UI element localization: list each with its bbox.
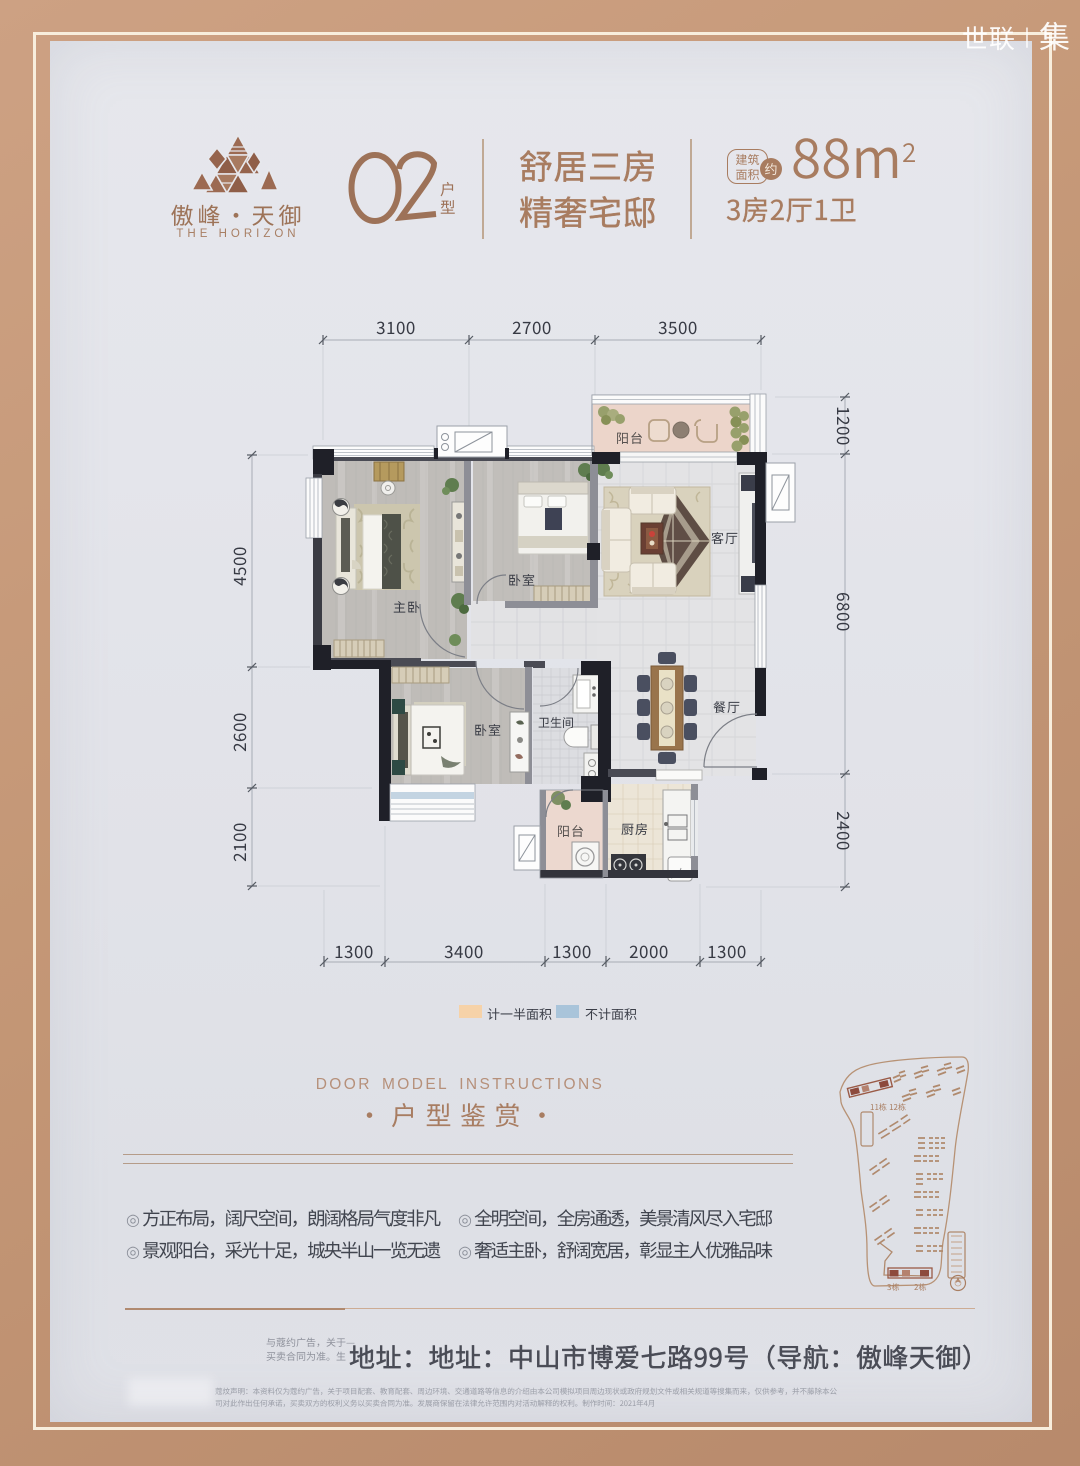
svg-text:2600: 2600 <box>226 712 251 752</box>
svg-text:2栋: 2栋 <box>914 1282 926 1293</box>
svg-text:阳台: 阳台 <box>616 428 644 447</box>
svg-text:阳台: 阳台 <box>557 821 585 840</box>
svg-text:2700: 2700 <box>512 320 552 339</box>
svg-text:3栋: 3栋 <box>887 1282 899 1293</box>
svg-text:客厅: 客厅 <box>711 528 739 547</box>
svg-text:卧室: 卧室 <box>474 720 502 739</box>
svg-text:4500: 4500 <box>226 546 251 586</box>
svg-text:3100: 3100 <box>376 320 416 339</box>
svg-text:2000: 2000 <box>629 938 669 963</box>
svg-text:3500: 3500 <box>658 320 698 339</box>
svg-text:卫生间: 卫生间 <box>538 714 574 731</box>
svg-text:1300: 1300 <box>334 938 374 963</box>
svg-text:1200: 1200 <box>832 406 857 446</box>
svg-text:厨房: 厨房 <box>621 819 649 838</box>
svg-text:1300: 1300 <box>552 938 592 963</box>
svg-text:1300: 1300 <box>707 938 747 963</box>
svg-text:6800: 6800 <box>832 592 857 632</box>
svg-text:卧室: 卧室 <box>508 570 536 589</box>
svg-text:2400: 2400 <box>832 811 857 851</box>
svg-text:3400: 3400 <box>444 938 484 963</box>
svg-text:餐厅: 餐厅 <box>713 697 741 716</box>
svg-text:2100: 2100 <box>226 822 251 862</box>
svg-text:11栋 12栋: 11栋 12栋 <box>870 1102 906 1113</box>
svg-text:主卧: 主卧 <box>393 597 421 616</box>
